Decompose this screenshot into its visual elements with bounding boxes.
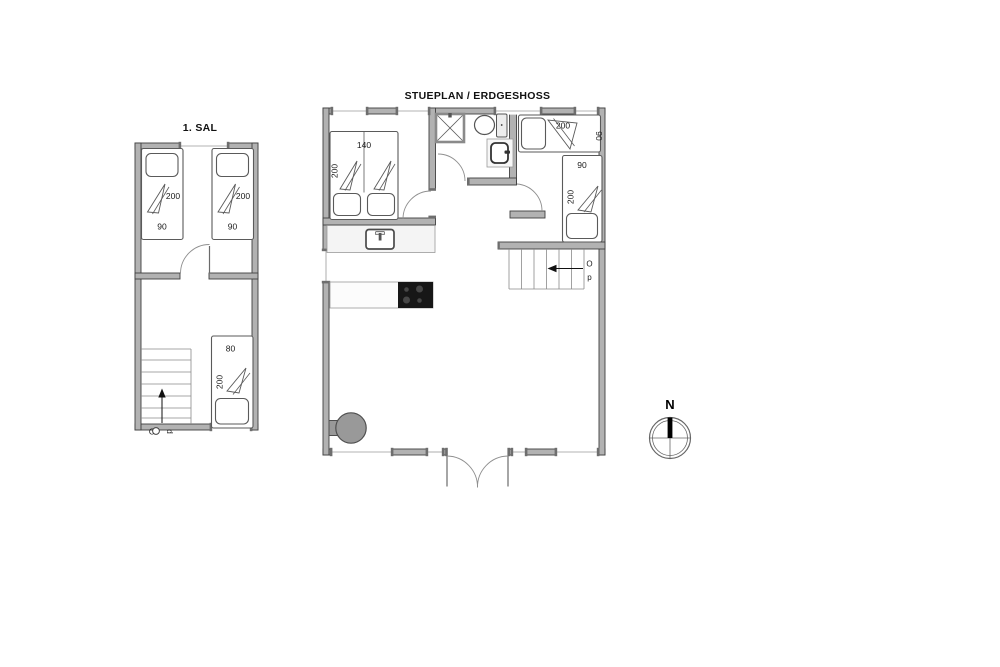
bed-width-label: 90 [157,222,167,232]
pillow [216,399,249,425]
door-swing-arc [403,191,431,219]
bed-width-label: 140 [357,140,371,150]
bath-bottom-wall [468,178,517,185]
upper-floorplan: 200 90 200 90 O p [120,118,275,443]
single-bed: 200 90 [212,149,254,240]
pillow [217,154,249,177]
bed-length-label: 200 [330,164,340,178]
bed-width-label: 90 [228,222,238,232]
cooktop [398,282,433,308]
compass-rose: N [642,393,698,465]
floorplan-page: 1. SAL STUEPLAN / ERDGESHOSS [0,0,1000,667]
stair-up-p: p [165,429,174,434]
pillow [146,154,178,177]
single-bed: 200 90 [142,149,184,240]
north-label: N [665,397,674,412]
bed-length-label: 200 [166,191,180,201]
faucet-icon [505,151,511,154]
window-left [322,249,330,284]
bathroom-sink [487,139,513,167]
bathroom-door-arc [438,154,465,181]
bedroom-door [403,188,436,219]
upper-stairs: O p [141,349,191,437]
upper-interior-wall [135,245,258,280]
entrance-double-door [445,448,510,488]
single-bed: 90 200 [563,156,603,243]
pillow [368,194,395,216]
bedroom-right-wall [429,108,436,190]
toilet [475,114,508,137]
kitchen-counter [327,226,435,253]
wall-left [135,143,141,430]
stair-hall-stub-wall [510,211,545,218]
stair-up-p: p [587,273,592,282]
right-bedroom-door-arc [517,184,542,211]
ground-stairs: O p [509,249,593,289]
double-bed: 140 200 [330,132,399,220]
shower [436,113,464,142]
single-bed: 200 90 [519,115,605,152]
pillow [567,214,598,239]
cooktop-counter [330,282,433,308]
stair-marker-circle [153,428,160,435]
wood-stove [329,413,366,443]
door-swing-arc [181,245,210,274]
stairs-top-wall [498,242,605,249]
bed-width-label: 90 [577,160,587,170]
bed-length-label: 200 [236,191,250,201]
pillow [334,194,361,216]
shower-head-icon [448,113,451,118]
single-bed: 80 200 [212,336,254,428]
pillow [522,118,546,149]
bed-length-label: 200 [556,121,570,131]
bed-width-label: 80 [226,344,236,354]
stair-up-o: O [586,260,592,269]
ground-floorplan: O p [315,85,615,505]
bed-length-label: 200 [566,190,576,204]
bed-length-label: 200 [215,375,225,389]
north-needle [668,418,673,439]
bed-width-label: 90 [594,131,604,141]
